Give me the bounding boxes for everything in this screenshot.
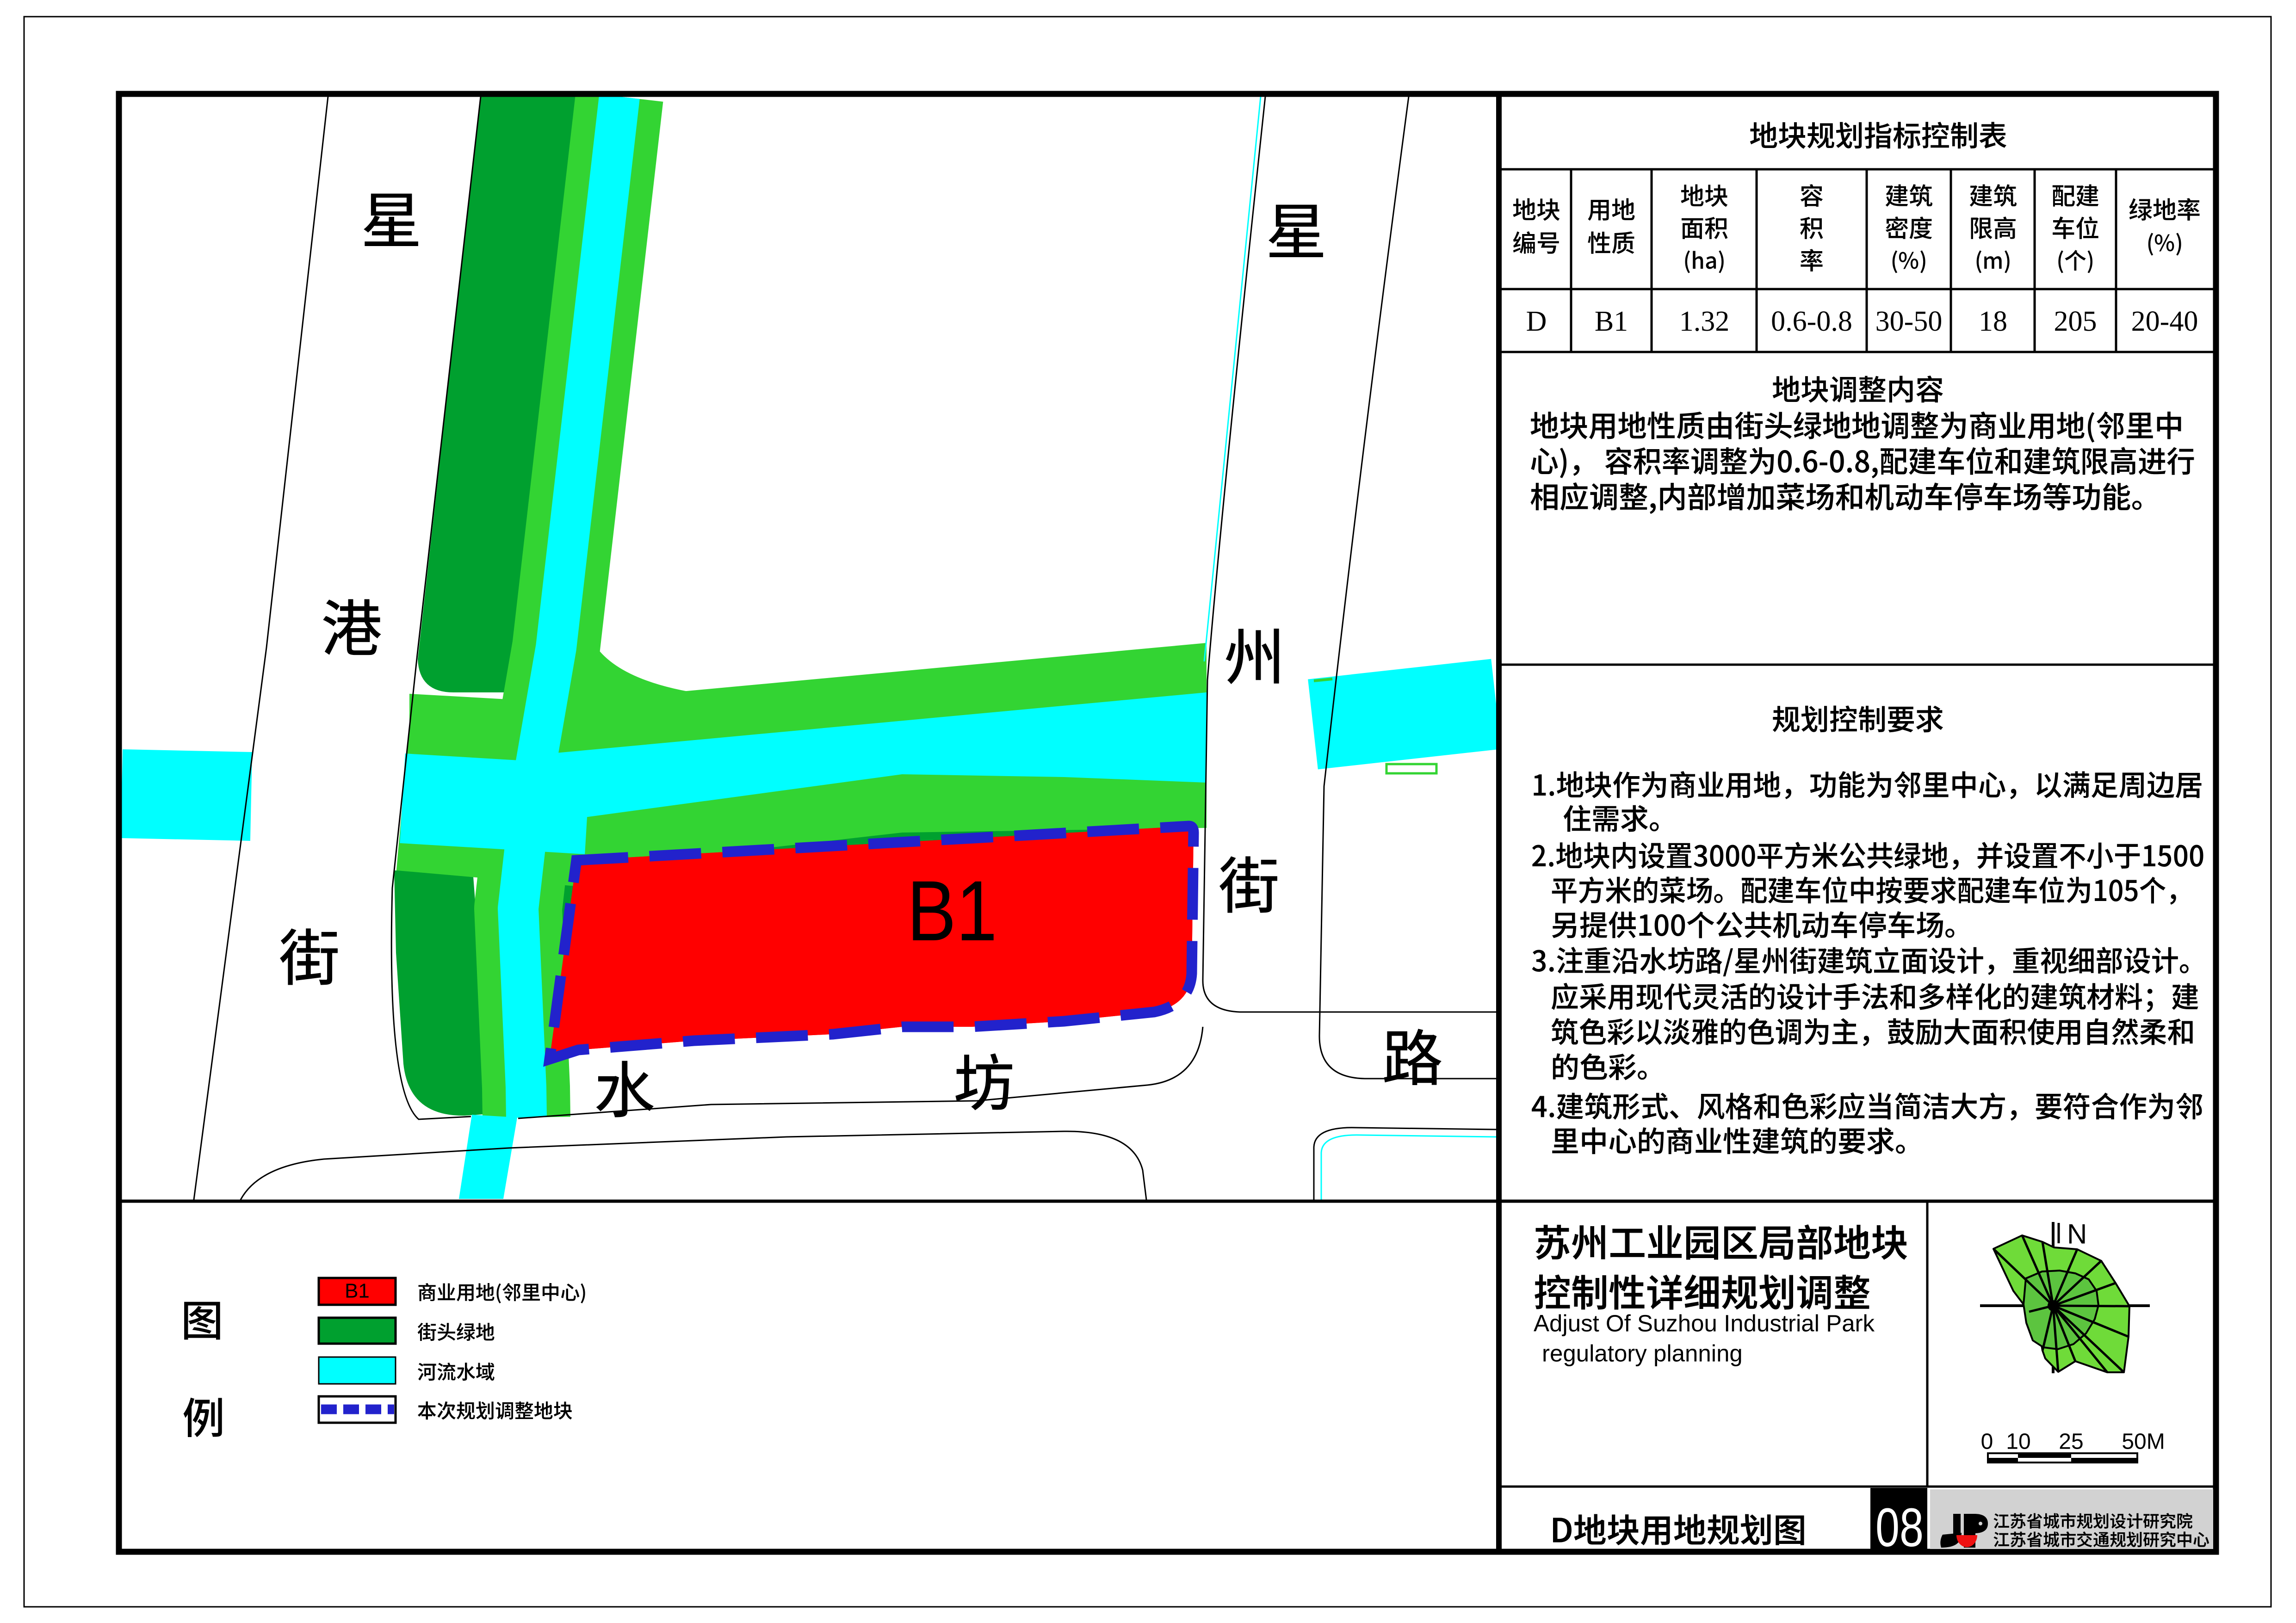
svg-text:地块规划指标控制表: 地块规划指标控制表 — [1749, 113, 2007, 154]
svg-text:地块调整内容: 地块调整内容 — [1772, 367, 1944, 408]
svg-text:(ha): (ha) — [1683, 243, 1726, 275]
svg-text:N: N — [2067, 1219, 2087, 1250]
svg-text:D: D — [1526, 306, 1547, 337]
svg-text:D地块用地规划图: D地块用地规划图 — [1550, 1504, 1807, 1552]
svg-text:编号: 编号 — [1512, 224, 1560, 259]
svg-text:州: 州 — [1224, 609, 1285, 697]
svg-text:建筑: 建筑 — [1885, 177, 1933, 212]
svg-text:1.32: 1.32 — [1679, 306, 1730, 337]
svg-text:regulatory planning: regulatory planning — [1542, 1340, 1743, 1367]
svg-text:绿地率: 绿地率 — [2129, 191, 2201, 226]
svg-text:相应调整,内部增加菜场和机动车停车场等功能。: 相应调整,内部增加菜场和机动车停车场等功能。 — [1530, 474, 2161, 517]
svg-text:205: 205 — [2054, 306, 2097, 337]
svg-text:50M: 50M — [2122, 1430, 2165, 1454]
svg-text:(%): (%) — [1890, 243, 1927, 275]
svg-text:规划控制要求: 规划控制要求 — [1772, 697, 1944, 738]
svg-text:本次规划调整地块: 本次规划调整地块 — [417, 1396, 573, 1424]
svg-text:星: 星 — [361, 173, 422, 261]
svg-text:容: 容 — [1800, 177, 1824, 212]
svg-text:B1: B1 — [345, 1280, 370, 1302]
svg-text:率: 率 — [1800, 242, 1824, 277]
svg-text:坊: 坊 — [953, 1035, 1015, 1123]
svg-text:18: 18 — [1979, 306, 2007, 337]
svg-text:例: 例 — [182, 1385, 225, 1446]
svg-text:街: 街 — [1219, 838, 1280, 926]
svg-text:面积: 面积 — [1680, 210, 1728, 244]
svg-text:密度: 密度 — [1885, 210, 1933, 244]
svg-text:B1: B1 — [907, 864, 997, 959]
svg-text:地块: 地块 — [1680, 177, 1728, 212]
svg-text:积: 积 — [1800, 210, 1824, 244]
svg-text:苏州工业园区局部地块: 苏州工业园区局部地块 — [1534, 1214, 1908, 1268]
svg-text:地块: 地块 — [1512, 191, 1560, 226]
svg-text:(%): (%) — [2146, 225, 2183, 258]
svg-text:星: 星 — [1266, 184, 1327, 272]
svg-text:水: 水 — [594, 1042, 655, 1130]
svg-text:限高: 限高 — [1969, 210, 2017, 244]
svg-text:0.6-0.8: 0.6-0.8 — [1771, 306, 1852, 337]
svg-text:车位: 车位 — [2051, 210, 2099, 244]
svg-text:10: 10 — [2006, 1430, 2030, 1454]
svg-text:街: 街 — [279, 910, 340, 998]
svg-text:街头绿地: 街头绿地 — [417, 1317, 495, 1345]
svg-text:的色彩。: 的色彩。 — [1551, 1044, 1665, 1086]
svg-text:用地: 用地 — [1587, 191, 1635, 226]
svg-text:B1: B1 — [1595, 306, 1628, 337]
svg-text:建筑: 建筑 — [1969, 177, 2017, 212]
svg-text:0: 0 — [1981, 1430, 1993, 1454]
svg-text:河流水域: 河流水域 — [417, 1357, 495, 1385]
svg-text:(个): (个) — [2056, 243, 2094, 275]
svg-text:商业用地(邻里中心): 商业用地(邻里中心) — [417, 1277, 587, 1306]
svg-text:住需求。: 住需求。 — [1563, 796, 1677, 838]
svg-text:港: 港 — [321, 580, 382, 669]
svg-text:性质: 性质 — [1587, 224, 1635, 259]
svg-text:配建: 配建 — [2051, 177, 2099, 212]
svg-text:控制性详细规划调整: 控制性详细规划调整 — [1534, 1264, 1871, 1318]
svg-text:Adjust Of Suzhou Industrial Pa: Adjust Of Suzhou Industrial Park — [1534, 1310, 1875, 1337]
svg-text:里中心的商业性建筑的要求。: 里中心的商业性建筑的要求。 — [1551, 1118, 1924, 1160]
svg-text:图: 图 — [181, 1287, 223, 1349]
svg-text:08: 08 — [1875, 1497, 1924, 1558]
svg-text:20-40: 20-40 — [2131, 306, 2198, 337]
svg-text:(m): (m) — [1974, 243, 2011, 275]
svg-text:25: 25 — [2059, 1430, 2083, 1454]
svg-text:路: 路 — [1382, 1010, 1443, 1098]
svg-text:江苏省城市交通规划研究中心: 江苏省城市交通规划研究中心 — [1993, 1527, 2209, 1551]
svg-text:30-50: 30-50 — [1875, 306, 1943, 337]
svg-text:3.注重沿水坊路/星州街建筑立面设计，重视细部设计。: 3.注重沿水坊路/星州街建筑立面设计，重视细部设计。 — [1531, 938, 2207, 980]
